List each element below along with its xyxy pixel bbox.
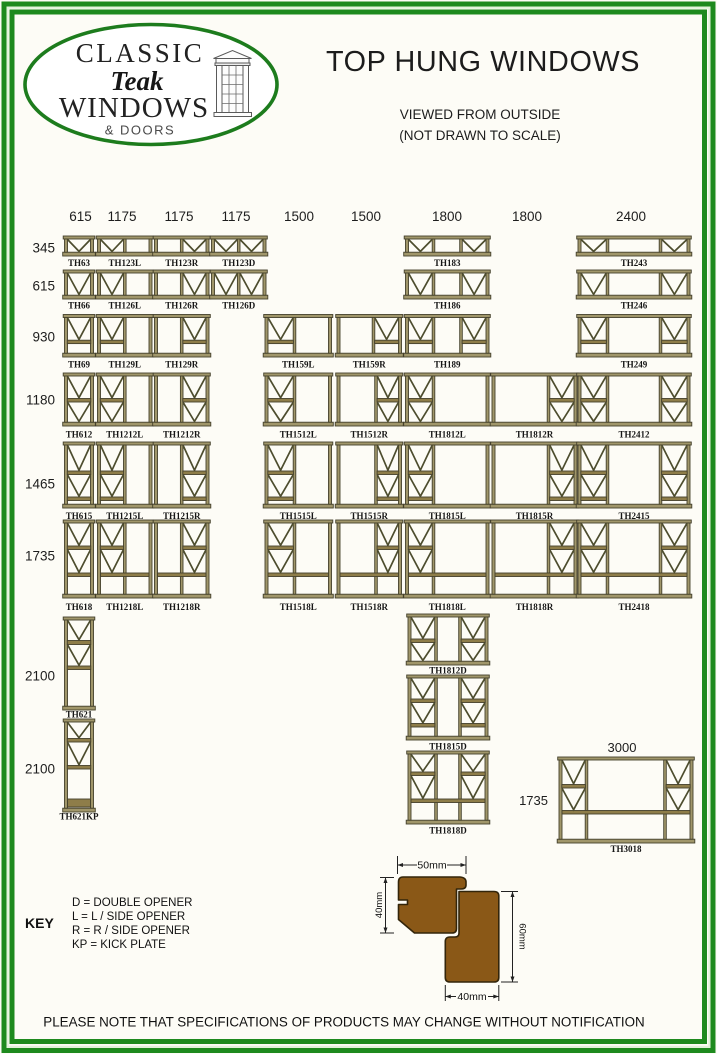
svg-text:345: 345 — [32, 241, 55, 256]
svg-text:TH3018: TH3018 — [610, 844, 642, 854]
svg-text:40mm: 40mm — [457, 991, 486, 1003]
svg-text:TH621: TH621 — [66, 710, 93, 720]
svg-text:TH126D: TH126D — [222, 301, 256, 311]
svg-text:CLASSIC: CLASSIC — [76, 38, 205, 68]
svg-text:TH186: TH186 — [434, 301, 461, 311]
svg-text:TH243: TH243 — [621, 258, 648, 268]
svg-text:40mm: 40mm — [374, 892, 385, 918]
svg-text:TH1515L: TH1515L — [280, 511, 317, 521]
svg-text:TH123L: TH123L — [109, 258, 142, 268]
svg-text:1500: 1500 — [284, 209, 314, 224]
svg-text:TH1812D: TH1812D — [429, 666, 467, 676]
svg-text:1180: 1180 — [26, 393, 55, 408]
svg-text:1500: 1500 — [351, 209, 381, 224]
svg-text:TH159R: TH159R — [353, 360, 387, 370]
svg-text:TH126R: TH126R — [165, 301, 199, 311]
svg-text:TH1518L: TH1518L — [280, 602, 317, 612]
svg-text:TH1815R: TH1815R — [516, 511, 554, 521]
svg-text:TH66: TH66 — [68, 301, 91, 311]
svg-text:(NOT DRAWN TO SCALE): (NOT DRAWN TO SCALE) — [399, 128, 561, 143]
svg-text:1465: 1465 — [25, 477, 55, 492]
svg-text:2100: 2100 — [25, 762, 55, 777]
svg-text:1175: 1175 — [107, 209, 136, 224]
svg-text:TH1815L: TH1815L — [429, 511, 466, 521]
svg-text:TH189: TH189 — [434, 360, 461, 370]
svg-text:50mm: 50mm — [417, 860, 446, 872]
svg-text:TH246: TH246 — [621, 301, 648, 311]
svg-text:TH1818R: TH1818R — [516, 602, 554, 612]
svg-text:TH1515R: TH1515R — [350, 511, 388, 521]
svg-text:& DOORS: & DOORS — [105, 123, 175, 138]
svg-text:TH126L: TH126L — [109, 301, 142, 311]
svg-text:TH1818L: TH1818L — [429, 602, 466, 612]
svg-text:TH123D: TH123D — [222, 258, 256, 268]
svg-text:615: 615 — [32, 279, 55, 294]
svg-text:2400: 2400 — [616, 209, 646, 224]
svg-text:TOP HUNG WINDOWS: TOP HUNG WINDOWS — [326, 46, 640, 78]
svg-text:TH1215R: TH1215R — [163, 511, 201, 521]
svg-text:L = L / SIDE OPENER: L = L / SIDE OPENER — [72, 911, 185, 923]
svg-text:TH63: TH63 — [68, 258, 91, 268]
svg-text:D = DOUBLE OPENER: D = DOUBLE OPENER — [72, 897, 192, 909]
svg-text:1800: 1800 — [512, 209, 542, 224]
svg-text:TH123R: TH123R — [165, 258, 199, 268]
svg-text:KP = KICK PLATE: KP = KICK PLATE — [72, 939, 166, 951]
svg-text:TH1518R: TH1518R — [350, 602, 388, 612]
svg-text:1735: 1735 — [25, 549, 55, 564]
svg-text:TH1815D: TH1815D — [429, 742, 467, 752]
svg-text:615: 615 — [69, 209, 92, 224]
svg-text:KEY: KEY — [25, 915, 54, 931]
svg-text:TH2412: TH2412 — [618, 430, 650, 440]
svg-text:TH612: TH612 — [66, 430, 93, 440]
svg-text:TH249: TH249 — [621, 360, 648, 370]
svg-text:R = R / SIDE OPENER: R = R / SIDE OPENER — [72, 925, 190, 937]
svg-text:PLEASE NOTE THAT SPECIFICATION: PLEASE NOTE THAT SPECIFICATIONS OF PRODU… — [43, 1015, 644, 1030]
svg-text:1735: 1735 — [519, 793, 548, 808]
svg-text:TH621KP: TH621KP — [59, 812, 99, 822]
svg-text:TH1212L: TH1212L — [106, 430, 143, 440]
svg-text:TH1212R: TH1212R — [163, 430, 201, 440]
svg-text:WINDOWS: WINDOWS — [59, 92, 209, 124]
svg-text:TH615: TH615 — [66, 511, 93, 521]
svg-text:TH1818D: TH1818D — [429, 826, 467, 836]
svg-text:TH69: TH69 — [68, 360, 91, 370]
svg-text:930: 930 — [32, 330, 55, 345]
svg-text:TH1812L: TH1812L — [429, 430, 466, 440]
svg-text:TH129R: TH129R — [165, 360, 199, 370]
svg-text:1800: 1800 — [432, 209, 462, 224]
svg-text:TH1512R: TH1512R — [350, 430, 388, 440]
svg-text:3000: 3000 — [608, 740, 637, 755]
svg-text:TH1218L: TH1218L — [106, 602, 143, 612]
svg-text:TH159L: TH159L — [282, 360, 315, 370]
svg-text:VIEWED FROM OUTSIDE: VIEWED FROM OUTSIDE — [400, 107, 561, 122]
svg-text:TH1812R: TH1812R — [516, 430, 554, 440]
svg-text:2100: 2100 — [25, 669, 55, 684]
svg-text:TH183: TH183 — [434, 258, 461, 268]
svg-text:TH1218R: TH1218R — [163, 602, 201, 612]
svg-text:TH129L: TH129L — [109, 360, 142, 370]
svg-text:1175: 1175 — [221, 209, 250, 224]
svg-text:TH618: TH618 — [66, 602, 93, 612]
svg-text:TH1215L: TH1215L — [106, 511, 143, 521]
svg-text:TH1512L: TH1512L — [280, 430, 317, 440]
svg-text:60mm: 60mm — [517, 923, 528, 949]
svg-text:1175: 1175 — [164, 209, 193, 224]
svg-text:TH2418: TH2418 — [618, 602, 650, 612]
svg-text:TH2415: TH2415 — [618, 511, 650, 521]
